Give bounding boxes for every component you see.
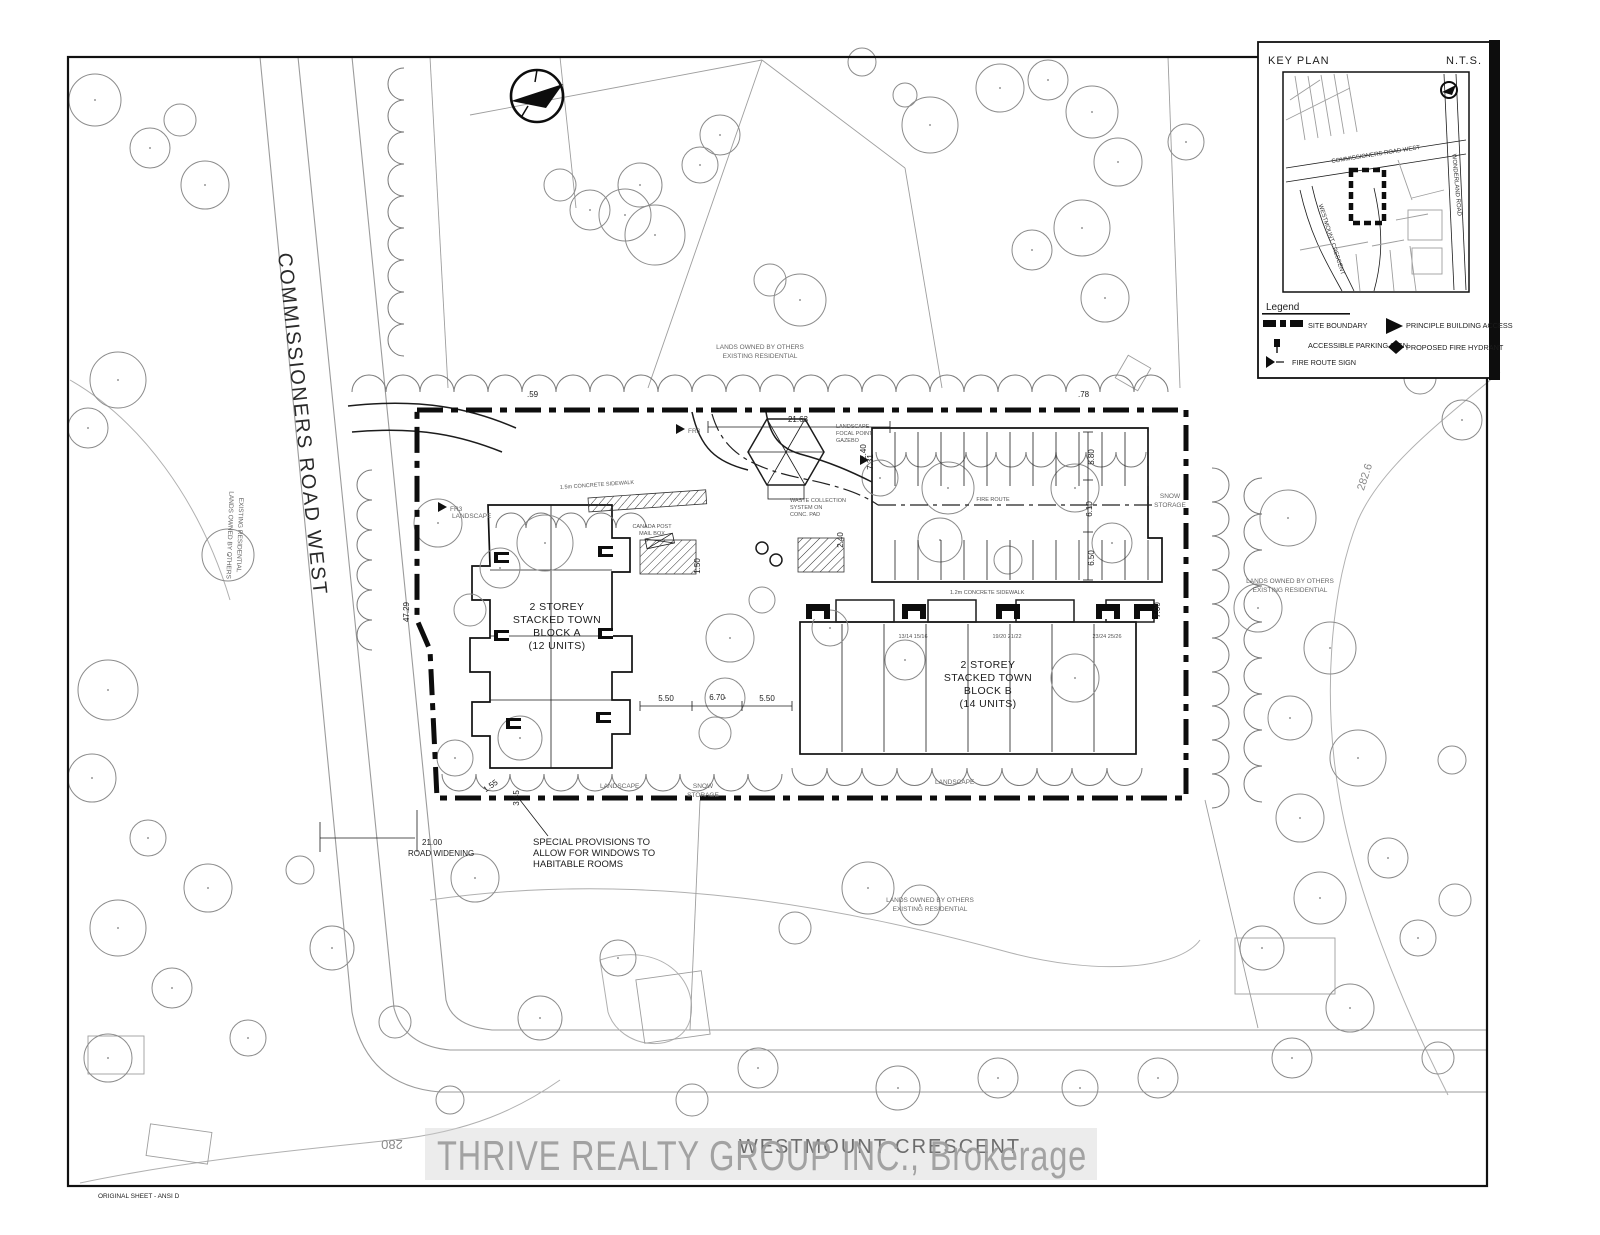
tree-symbol	[676, 1084, 708, 1116]
street-commissioners: COMMISSIONERS ROAD WEST	[273, 252, 331, 597]
tree-center-dot	[997, 1077, 999, 1079]
tree-center-dot	[1291, 1057, 1293, 1059]
stair-notch	[498, 555, 509, 560]
tree-center-dot	[331, 947, 333, 949]
tree-center-dot	[107, 1057, 109, 1059]
tree-center-dot	[204, 184, 206, 186]
tree-center-dot	[94, 99, 96, 101]
stair-notch	[602, 631, 613, 636]
legend-building-access: PRINCIPLE BUILDING ACCESS	[1406, 321, 1513, 330]
dim-3-45: 3.45	[512, 790, 521, 806]
site-plan-drawing: 21.63 .59 .78 47.29 7.31 5.80 6.10 6.50 …	[0, 0, 1600, 1235]
tree-center-dot	[757, 1067, 759, 1069]
tree-center-dot	[1289, 717, 1291, 719]
tree-center-dot	[617, 957, 619, 959]
unit-pair-1: 13/14 15/16	[898, 634, 927, 640]
block-a-line-3: BLOCK A	[533, 627, 581, 639]
tree-symbol	[1439, 884, 1471, 916]
tree-center-dot	[1047, 79, 1049, 81]
tree-center-dot	[247, 1037, 249, 1039]
lands-note-top-1: LANDS OWNED BY OTHERS	[716, 344, 804, 351]
key-plan-scale: N.T.S.	[1446, 55, 1482, 67]
tree-center-dot	[897, 1087, 899, 1089]
waste-molok-circles	[756, 542, 782, 566]
fire-sign-label-1: FR3	[450, 506, 463, 513]
tree-center-dot	[1349, 1007, 1351, 1009]
tree-symbol	[699, 717, 731, 749]
dim-5-50-b: 5.50	[759, 694, 775, 703]
lands-note-bottom-2: EXISTING RESIDENTIAL	[893, 906, 968, 913]
stair-notch	[908, 611, 920, 619]
block-a-line-1: 2 STOREY	[530, 601, 585, 613]
tree-center-dot	[107, 689, 109, 691]
tree-center-dot	[1387, 857, 1389, 859]
tree-center-dot	[1079, 1087, 1081, 1089]
stair-notch	[1102, 611, 1114, 619]
stair-notch	[812, 611, 824, 619]
tree-center-dot	[1111, 542, 1113, 544]
tree-center-dot	[499, 567, 501, 569]
key-plan-map	[1283, 72, 1469, 292]
tree-symbol	[1438, 746, 1466, 774]
tree-center-dot	[91, 777, 93, 779]
site-plan-sheet: 21.63 .59 .78 47.29 7.31 5.80 6.10 6.50 …	[0, 0, 1600, 1235]
tree-center-dot	[454, 757, 456, 759]
contour-lines	[70, 372, 1500, 1183]
block-b-line-3: BLOCK B	[964, 685, 1012, 697]
stair-notch	[602, 549, 613, 554]
tree-center-dot	[117, 927, 119, 929]
tree-symbol	[749, 587, 775, 613]
watermark-text: THRIVE REALTY GROUP INC., Brokerage	[437, 1132, 1087, 1179]
tree-center-dot	[539, 1017, 541, 1019]
hedge-row	[1244, 478, 1262, 802]
legend-title: Legend	[1266, 302, 1299, 313]
unit-pair-3: 23/24 25/26	[1092, 634, 1121, 640]
tree-center-dot	[639, 184, 641, 186]
lands-note-left-1: LANDS OWNED BY OTHERS	[224, 491, 234, 580]
tree-center-dot	[149, 147, 151, 149]
tree-center-dot	[1117, 161, 1119, 163]
dim-6-50: 6.50	[1087, 550, 1096, 566]
tree-center-dot	[437, 522, 439, 524]
tree-symbol	[164, 104, 196, 136]
snow-label-right: SNOW	[1160, 493, 1181, 500]
north-arrow-icon	[511, 70, 563, 122]
tree-symbol	[286, 856, 314, 884]
storage-label-bottom: STORAGE	[687, 792, 719, 799]
tree-center-dot	[207, 887, 209, 889]
dim-2-40-a: 2.40	[859, 444, 868, 460]
tree-center-dot	[1299, 817, 1301, 819]
tree-symbol	[848, 48, 876, 76]
tree-symbol	[436, 1086, 464, 1114]
gazebo-note-1: LANDSCAPE	[836, 424, 870, 430]
tree-symbol	[454, 594, 486, 626]
lands-note-right-2: EXISTING RESIDENTIAL	[1253, 587, 1328, 594]
tree-center-dot	[1461, 419, 1463, 421]
key-plan-title: KEY PLAN	[1268, 55, 1330, 67]
tree-center-dot	[929, 124, 931, 126]
snow-label-bottom: SNOW	[693, 783, 714, 790]
gazebo-hexagon	[748, 419, 824, 499]
dim-1-50: 1.50	[693, 558, 702, 574]
dim-7-00: 7.00	[1153, 602, 1162, 618]
landscape-label-2: LANDSCAPE	[600, 783, 640, 790]
tree-center-dot	[474, 877, 476, 879]
tree-center-dot	[999, 87, 1001, 89]
block-a-line-4: (12 UNITS)	[528, 640, 585, 652]
tree-center-dot	[654, 234, 656, 236]
tree-center-dot	[147, 837, 149, 839]
tree-center-dot	[829, 627, 831, 629]
special-note-1: SPECIAL PROVISIONS TO	[533, 837, 650, 848]
tree-center-dot	[1157, 1077, 1159, 1079]
fire-route-label: FIRE ROUTE	[976, 497, 1010, 503]
lands-note-top-2: EXISTING RESIDENTIAL	[723, 353, 798, 360]
landscape-label-1: LANDSCAPE	[452, 513, 492, 520]
tree-center-dot	[87, 427, 89, 429]
sidewalk-15-label: 1.5m CONCRETE SIDEWALK	[560, 480, 635, 491]
tree-center-dot	[544, 542, 546, 544]
tree-center-dot	[699, 164, 701, 166]
stair-notch	[600, 715, 611, 720]
tree-center-dot	[1257, 607, 1259, 609]
special-note-3: HABITABLE ROOMS	[533, 859, 623, 870]
tree-center-dot	[171, 987, 173, 989]
tree-center-dot	[1031, 249, 1033, 251]
dim-6-10: 6.10	[1085, 501, 1094, 517]
tree-center-dot	[729, 637, 731, 639]
waste-note-2: SYSTEM ON	[790, 505, 822, 511]
tree-center-dot	[799, 299, 801, 301]
lands-note-bottom-1: LANDS OWNED BY OTHERS	[886, 897, 974, 904]
tree-center-dot	[1261, 947, 1263, 949]
tree-center-dot	[1417, 937, 1419, 939]
dim-2-40-b: 2.40	[836, 532, 845, 548]
landscape-label-3: LANDSCAPE	[935, 779, 975, 786]
tree-center-dot	[1185, 141, 1187, 143]
key-plan-panel: KEY PLAN N.T.S. COMMISSION	[1258, 40, 1513, 380]
dim-0-59: .59	[527, 390, 539, 399]
tree-symbol	[893, 83, 917, 107]
tree-center-dot	[589, 209, 591, 211]
tree-center-dot	[1081, 227, 1083, 229]
annotations: LANDS OWNED BY OTHERS EXISTING RESIDENTI…	[224, 344, 1334, 913]
block-a-line-2: STACKED TOWN	[513, 614, 601, 626]
contour-282-6: 282.6	[1355, 462, 1375, 492]
tree-center-dot	[1357, 757, 1359, 759]
stair-notch	[1140, 611, 1152, 619]
dim-47-29: 47.29	[402, 601, 411, 622]
hedge-row	[388, 68, 404, 356]
legend-fire-hydrant: PROPOSED FIRE HYDRANT	[1406, 343, 1504, 352]
hedge-row	[357, 470, 372, 650]
dim-5-50-a: 5.50	[658, 694, 674, 703]
lands-note-right-1: LANDS OWNED BY OTHERS	[1246, 578, 1334, 585]
gazebo-note-3: GAZEBO	[836, 438, 860, 444]
dim-5-80: 5.80	[1087, 449, 1096, 465]
hedge-row	[1212, 468, 1229, 808]
legend-site-boundary: SITE BOUNDARY	[1308, 321, 1368, 330]
gazebo-note-2: FOCAL POINT	[836, 431, 873, 437]
tree-center-dot	[879, 477, 881, 479]
tree-symbol	[754, 264, 786, 296]
block-b-line-1: 2 STOREY	[961, 659, 1016, 671]
tree-center-dot	[947, 487, 949, 489]
tree-center-dot	[1329, 647, 1331, 649]
tree-center-dot	[1074, 677, 1076, 679]
stair-notch	[510, 721, 521, 726]
dim-21-00: 21.00	[422, 838, 443, 847]
stair-notch	[1002, 611, 1014, 619]
tree-symbol	[544, 169, 576, 201]
fire-sign-label-2: FR3	[688, 428, 701, 435]
special-note-2: ALLOW FOR WINDOWS TO	[533, 848, 655, 859]
storage-label-right: STORAGE	[1154, 502, 1186, 509]
tree-center-dot	[1091, 111, 1093, 113]
legend-fire-route: FIRE ROUTE SIGN	[1292, 358, 1356, 367]
dim-21-63: 21.63	[788, 415, 809, 424]
dim-6-70: 6.70	[709, 693, 725, 702]
canada-post-2: MAIL BOX	[639, 531, 665, 537]
tree-center-dot	[1287, 517, 1289, 519]
contour-280: 280	[381, 1137, 403, 1152]
road-widening-label: ROAD WIDENING	[408, 849, 474, 858]
tree-center-dot	[117, 379, 119, 381]
dim-0-78: .78	[1078, 390, 1090, 399]
tree-symbol	[779, 912, 811, 944]
tree-center-dot	[624, 214, 626, 216]
tree-center-dot	[1074, 487, 1076, 489]
tree-center-dot	[867, 887, 869, 889]
unit-pair-2: 19/20 21/22	[992, 634, 1021, 640]
waste-note-3: CONC. PAD	[790, 512, 820, 518]
tree-center-dot	[719, 134, 721, 136]
tree-center-dot	[1319, 897, 1321, 899]
canada-post-1: CANADA POST	[632, 524, 672, 530]
block-b-line-2: STACKED TOWN	[944, 672, 1032, 684]
block-b-line-4: (14 UNITS)	[959, 698, 1016, 710]
hedge-row	[352, 375, 1168, 392]
site-boundary-dash-icon	[1263, 320, 1303, 327]
tree-symbol	[1422, 1042, 1454, 1074]
waste-note-1: WASTE COLLECTION	[790, 498, 846, 504]
stair-notch	[498, 633, 509, 638]
footer-note: ORIGINAL SHEET - ANSI D	[98, 1193, 180, 1200]
tree-center-dot	[519, 737, 521, 739]
sidewalk-12-label: 1.2m CONCRETE SIDEWALK	[950, 590, 1025, 596]
tree-center-dot	[1104, 297, 1106, 299]
lands-note-left-2: EXISTING RESIDENTIAL	[235, 498, 245, 573]
dim-1-55: 1.55	[482, 777, 500, 794]
tree-center-dot	[904, 659, 906, 661]
